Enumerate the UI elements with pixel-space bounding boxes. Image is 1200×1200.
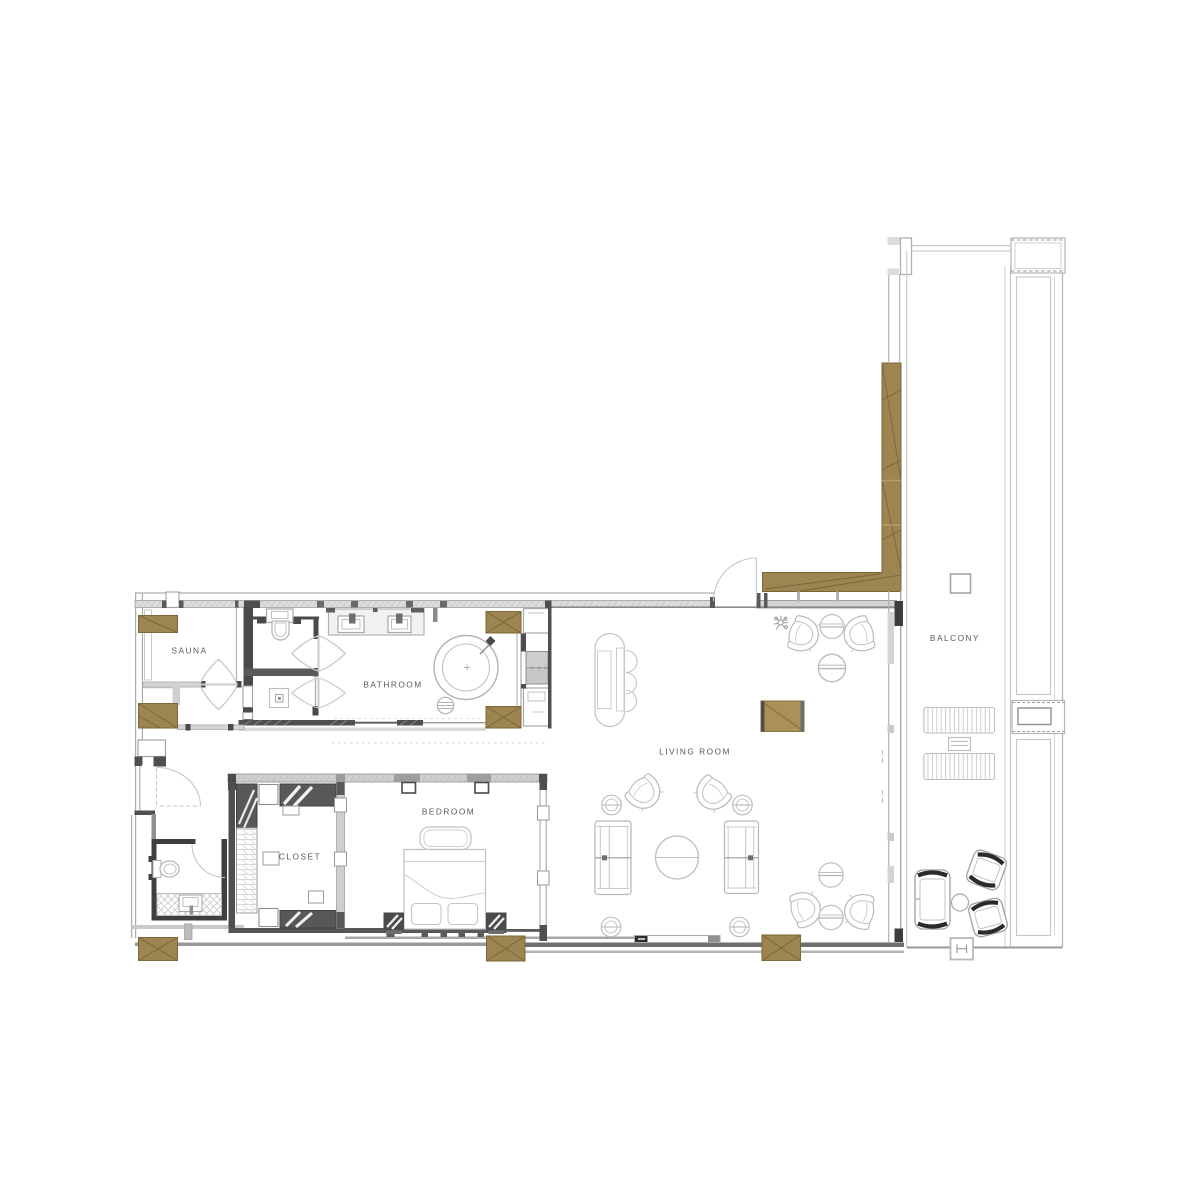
- svg-text:BEDROOM: BEDROOM: [422, 807, 475, 817]
- svg-text:CLOSET: CLOSET: [279, 852, 321, 862]
- svg-text:BATHROOM: BATHROOM: [363, 680, 422, 690]
- svg-text:LIVING ROOM: LIVING ROOM: [659, 747, 731, 757]
- svg-text:SAUNA: SAUNA: [171, 646, 207, 656]
- svg-text:BALCONY: BALCONY: [930, 633, 980, 643]
